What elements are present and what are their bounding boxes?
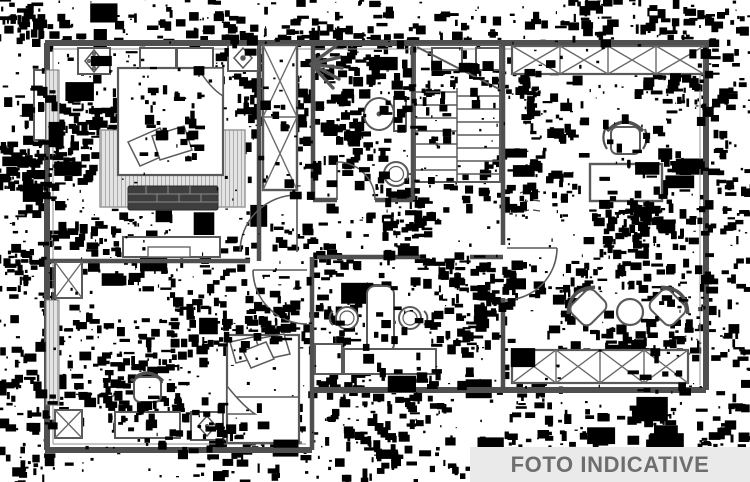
window-cross-band-icon [512,46,704,74]
wardrobe-cross-icon [263,45,297,190]
sideboard-icon [123,237,220,257]
shower-spray-icon [311,46,342,88]
closet-hatch-icon [46,300,59,405]
counter-icon [344,349,436,374]
window-icon [140,48,176,70]
vanity-cabinet-icon [367,286,394,352]
banner-label: FOTO INDICATIVE [511,452,710,478]
bench-icon [128,186,218,210]
floorplan-photo: FOTO INDICATIVE [0,0,750,482]
window-cross-band-icon [512,350,688,383]
double-bed-icon [118,68,223,175]
foto-indicative-banner: FOTO INDICATIVE [470,447,750,482]
round-table-icon [617,299,643,325]
cabinet-icon [315,344,342,374]
floorplan-drawing [0,0,750,482]
desk-chair-icon [603,122,646,154]
